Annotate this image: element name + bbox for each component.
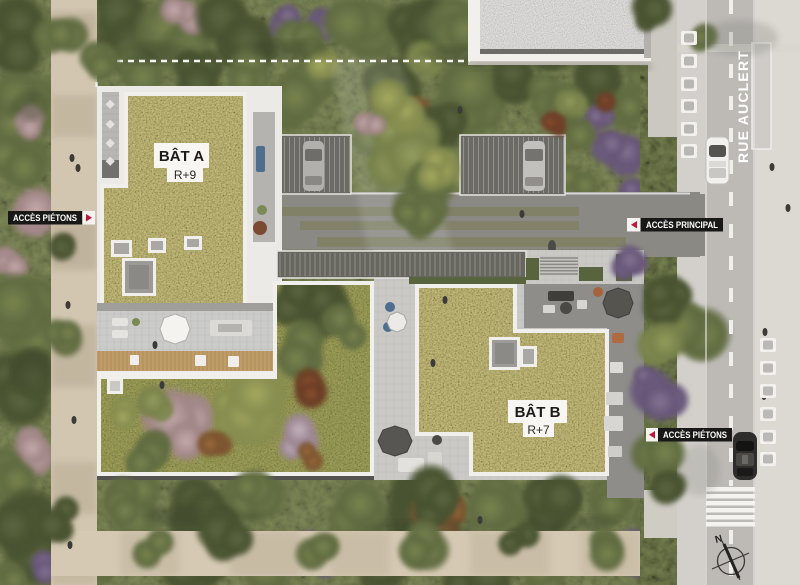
svg-text:ACCÈS PRINCIPAL: ACCÈS PRINCIPAL (646, 220, 718, 230)
svg-text:ACCÈS PIÉTONS: ACCÈS PIÉTONS (663, 430, 727, 440)
svg-text:BÂT B: BÂT B (515, 403, 561, 421)
svg-text:RUE AUCLERT: RUE AUCLERT (735, 50, 751, 163)
svg-text:R+7: R+7 (527, 423, 550, 437)
svg-text:ACCÈS PIÉTONS: ACCÈS PIÉTONS (13, 213, 77, 223)
svg-text:R+9: R+9 (174, 168, 197, 182)
svg-text:BÂT A: BÂT A (159, 147, 204, 165)
